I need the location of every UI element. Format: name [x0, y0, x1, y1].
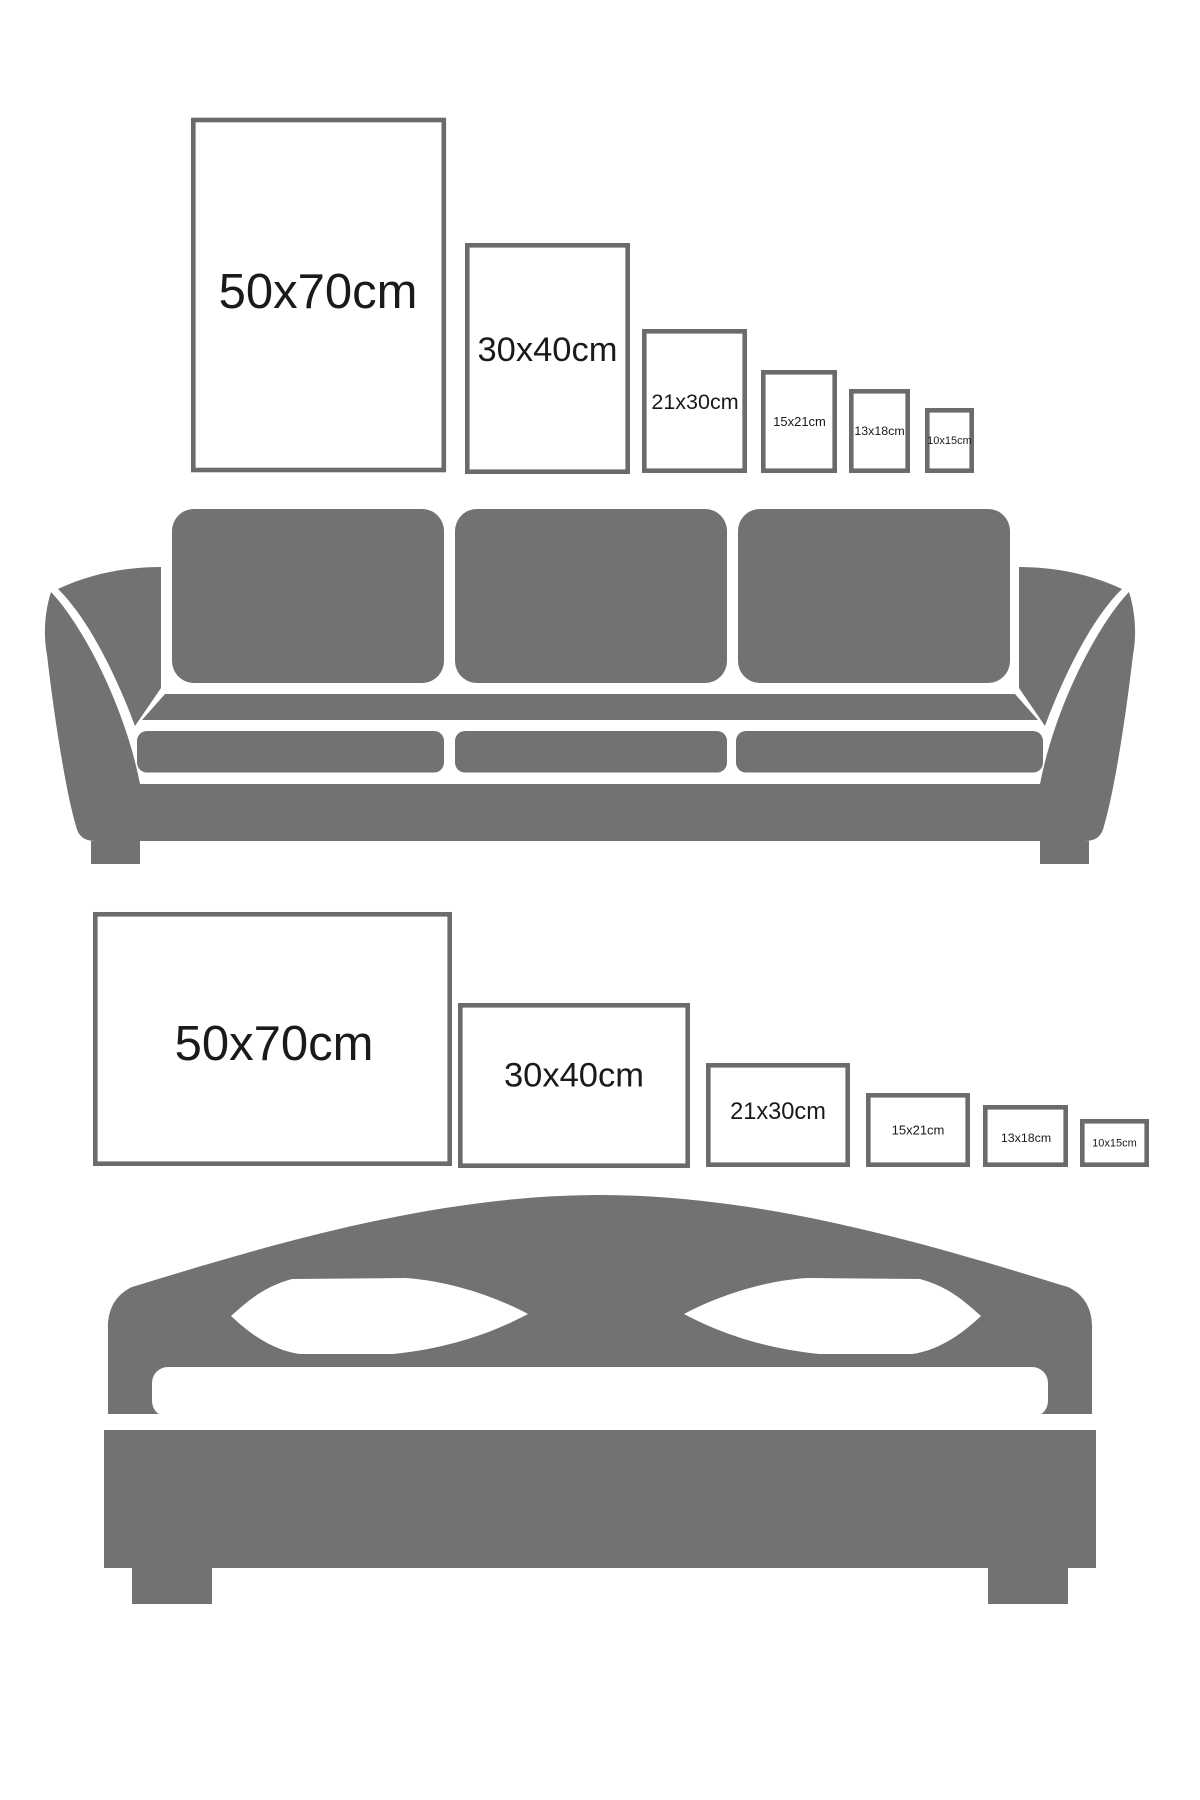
- svg-text:15x21cm: 15x21cm: [773, 414, 826, 429]
- svg-text:13x18cm: 13x18cm: [854, 424, 904, 438]
- svg-text:50x70cm: 50x70cm: [219, 265, 418, 319]
- svg-text:50x70cm: 50x70cm: [175, 1017, 374, 1071]
- svg-text:13x18cm: 13x18cm: [1001, 1131, 1051, 1145]
- svg-text:15x21cm: 15x21cm: [892, 1123, 945, 1138]
- svg-text:10x15cm: 10x15cm: [1092, 1138, 1137, 1150]
- svg-text:30x40cm: 30x40cm: [478, 331, 618, 369]
- svg-text:21x30cm: 21x30cm: [651, 390, 738, 414]
- svg-text:10x15cm: 10x15cm: [927, 435, 972, 447]
- svg-text:30x40cm: 30x40cm: [504, 1057, 644, 1095]
- svg-text:21x30cm: 21x30cm: [730, 1099, 826, 1125]
